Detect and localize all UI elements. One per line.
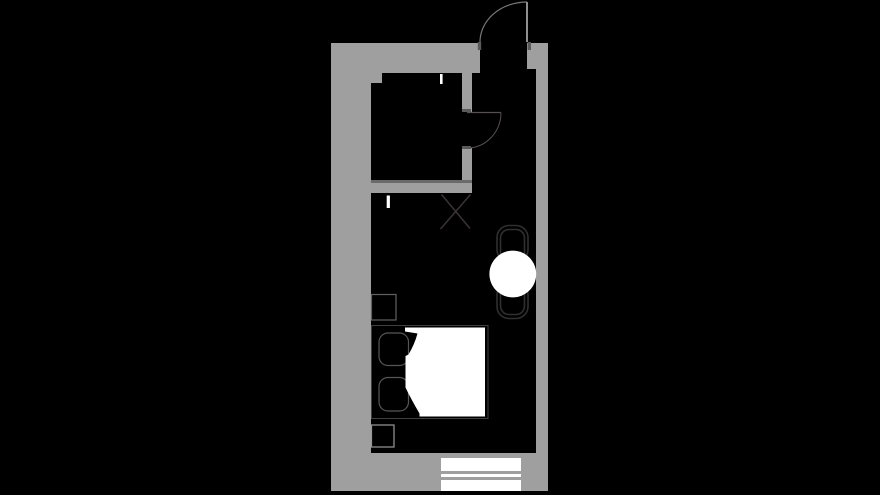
stool	[372, 425, 395, 447]
bath-door-arc	[467, 113, 501, 149]
entry-door-arc	[480, 2, 527, 42]
pillow-top	[379, 333, 409, 366]
entry-door-jamb-right	[528, 42, 531, 50]
luggage-rack-icon	[441, 195, 471, 230]
duvet	[405, 328, 485, 417]
floor-plan-canvas	[0, 0, 880, 495]
bedroom-wall-tick	[387, 196, 390, 209]
pillow-bottom	[379, 378, 409, 412]
bath-door-jamb-top	[462, 109, 471, 112]
round-table	[489, 251, 536, 298]
entry-door-jamb-left	[478, 42, 481, 50]
nightstand	[372, 295, 397, 321]
bathroom-wall-tick	[440, 74, 443, 84]
furniture-layer	[0, 0, 880, 495]
